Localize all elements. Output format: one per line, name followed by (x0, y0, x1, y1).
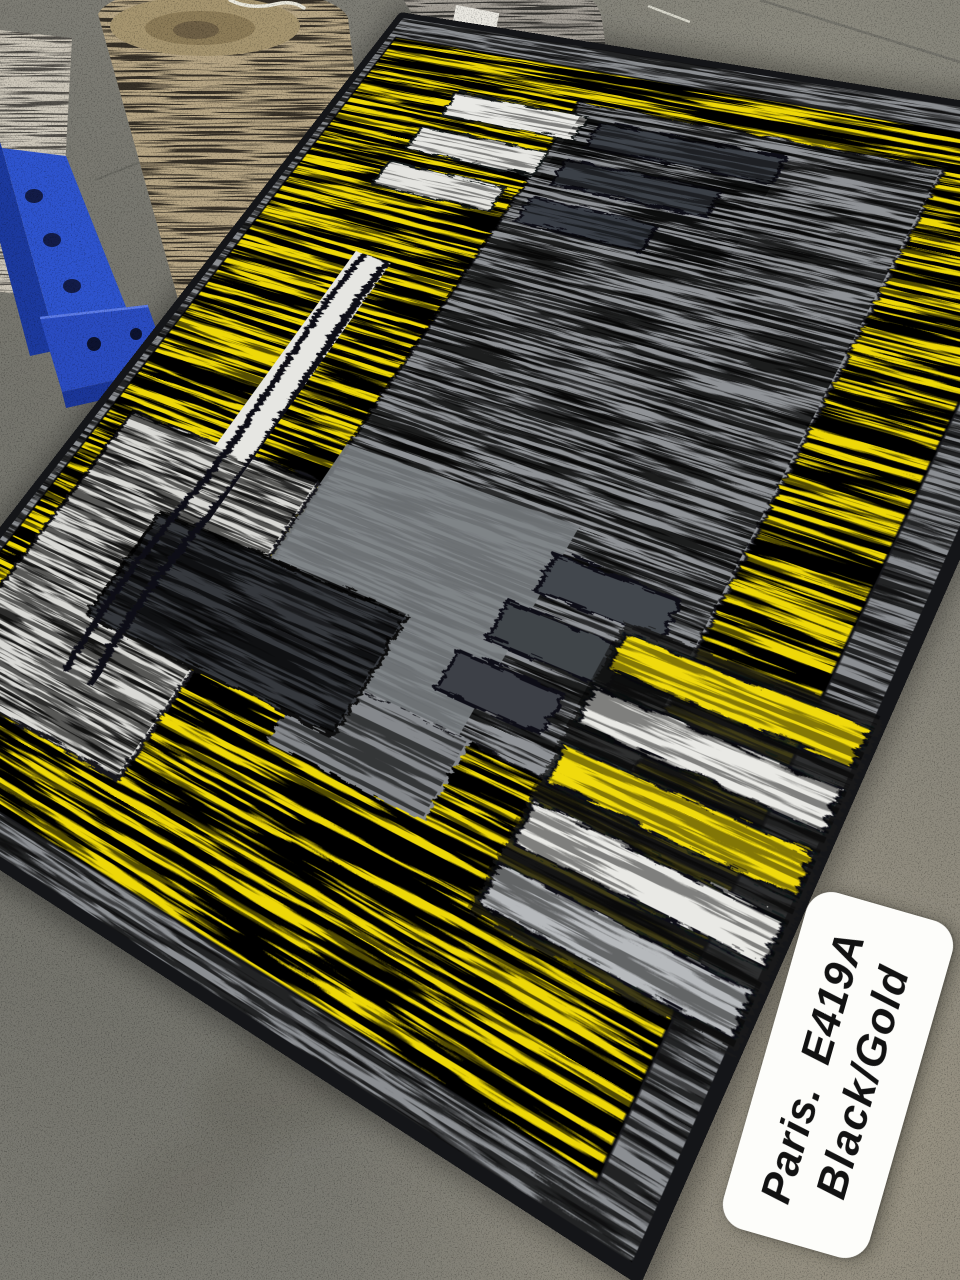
warehouse-photo: Paris. E419A Black/Gold (0, 0, 960, 1280)
